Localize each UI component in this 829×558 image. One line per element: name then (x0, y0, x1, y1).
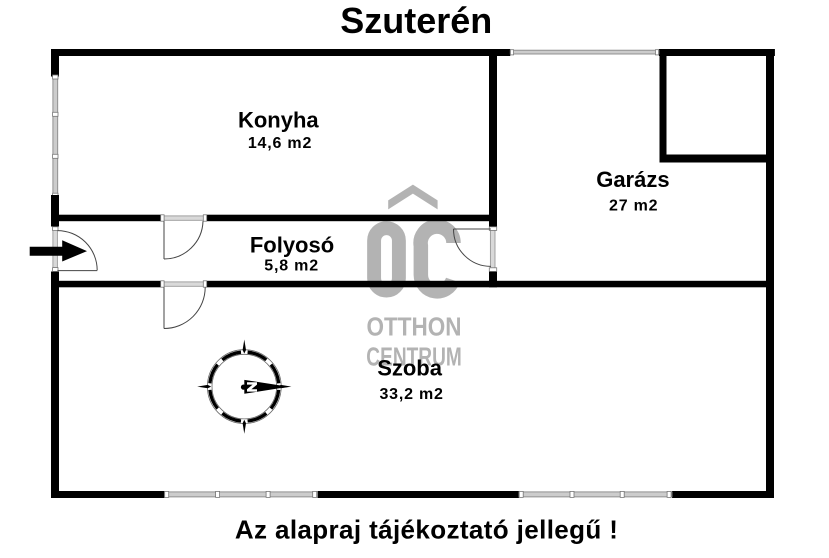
svg-text:OTTHON: OTTHON (367, 311, 462, 341)
svg-text:33,2 m2: 33,2 m2 (379, 386, 443, 403)
svg-text:Konyha: Konyha (238, 108, 319, 133)
svg-text:Az alapraj tájékoztató jellegű: Az alapraj tájékoztató jellegű ! (235, 515, 618, 545)
svg-text:Folyosó: Folyosó (250, 232, 334, 257)
svg-text:Garázs: Garázs (596, 167, 669, 192)
svg-text:5,8 m2: 5,8 m2 (264, 257, 319, 274)
svg-text:27 m2: 27 m2 (609, 197, 658, 214)
svg-text:Szuterén: Szuterén (340, 0, 492, 41)
svg-text:Szoba: Szoba (377, 356, 443, 381)
svg-text:14,6 m2: 14,6 m2 (248, 135, 312, 152)
